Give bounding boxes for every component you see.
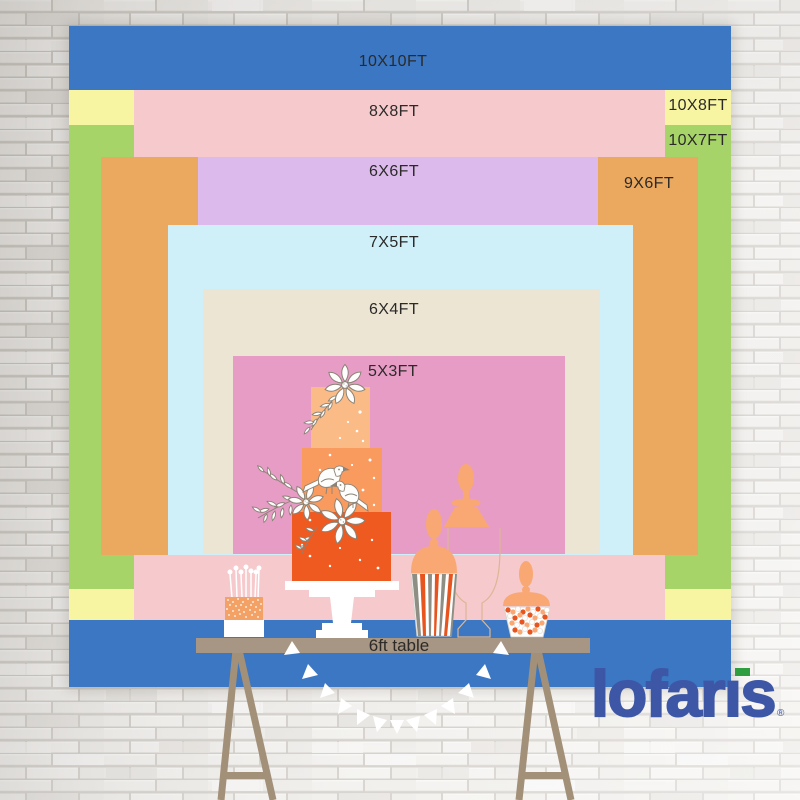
svg-text:6ft table: 6ft table (369, 636, 430, 655)
